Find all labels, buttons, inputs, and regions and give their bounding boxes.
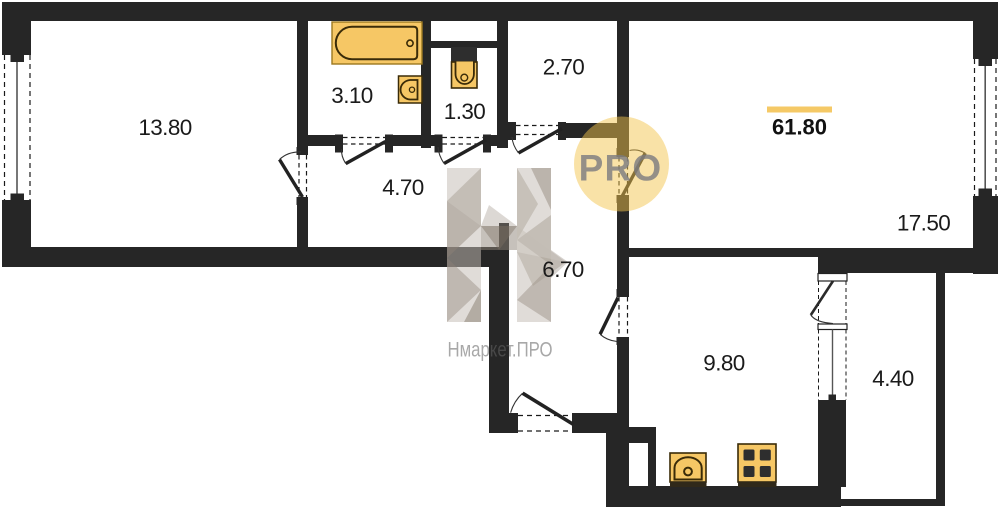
svg-text:1.30: 1.30 <box>444 99 485 124</box>
svg-text:PRO: PRO <box>579 148 663 189</box>
svg-text:2.70: 2.70 <box>543 55 584 80</box>
svg-text:3.10: 3.10 <box>331 83 372 108</box>
svg-text:9.80: 9.80 <box>703 351 744 376</box>
svg-text:17.50: 17.50 <box>897 211 950 236</box>
svg-text:6.70: 6.70 <box>542 257 583 282</box>
svg-text:Нмаркет.ПРО: Нмаркет.ПРО <box>448 338 553 362</box>
svg-text:13.80: 13.80 <box>138 115 191 140</box>
svg-text:4.70: 4.70 <box>382 175 423 200</box>
svg-text:4.40: 4.40 <box>872 366 913 391</box>
svg-text:61.80: 61.80 <box>772 115 827 140</box>
